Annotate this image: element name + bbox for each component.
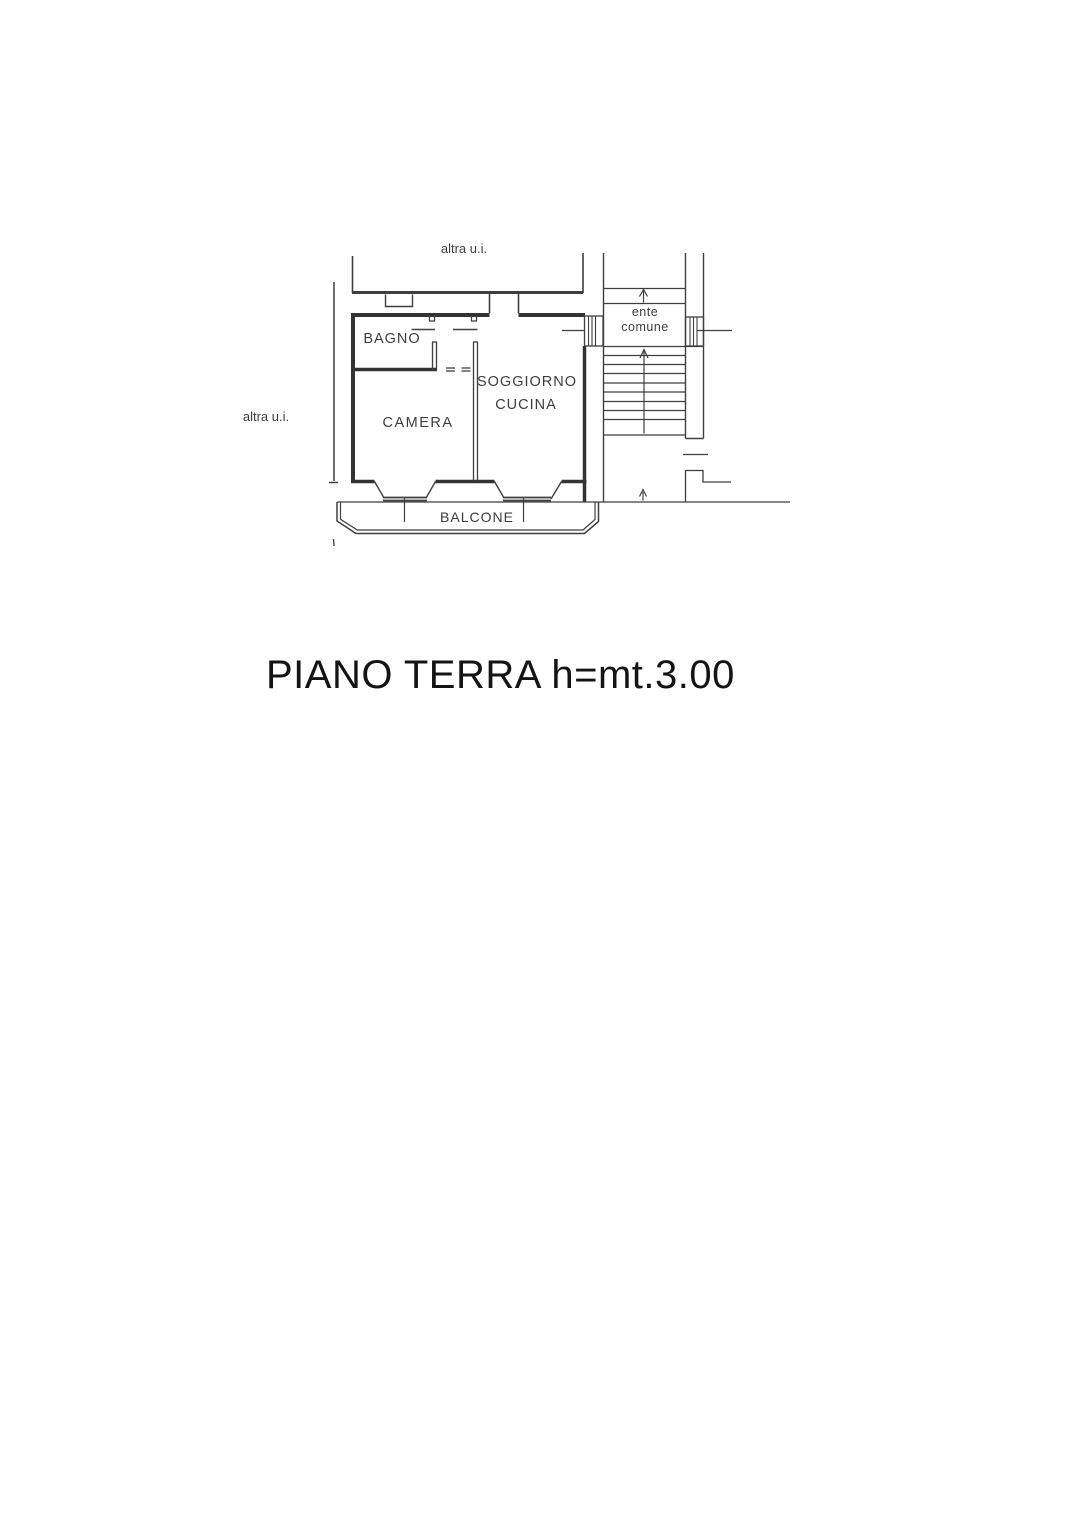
room-label-soggiorno: SOGGIORNO <box>477 375 577 390</box>
label-altra-ui-left: altra u.i. <box>243 410 289 423</box>
stairwell-walls <box>604 253 704 502</box>
label-altra-ui-top: altra u.i. <box>441 242 487 255</box>
room-label-balcone: BALCONE <box>440 510 514 524</box>
stairwell-label-ente: ente <box>632 306 658 319</box>
room-label-bagno: BAGNO <box>363 332 420 347</box>
room-label-cucina: CUCINA <box>495 398 557 413</box>
site-lines <box>337 455 790 503</box>
stairwell-label-comune: comune <box>621 321 668 334</box>
room-label-camera: CAMERA <box>382 416 453 431</box>
landing-door-left <box>562 316 603 346</box>
floor-plan-linework <box>0 0 1085 1535</box>
page-title: PIANO TERRA h=mt.3.00 <box>266 655 735 695</box>
floor-plan-page: altra u.i. altra u.i. BAGNO CAMERA SOGGI… <box>0 0 1085 1535</box>
interior-partitions <box>412 316 479 482</box>
upper-unit-walls <box>352 253 583 313</box>
landing-door-right <box>686 317 733 346</box>
